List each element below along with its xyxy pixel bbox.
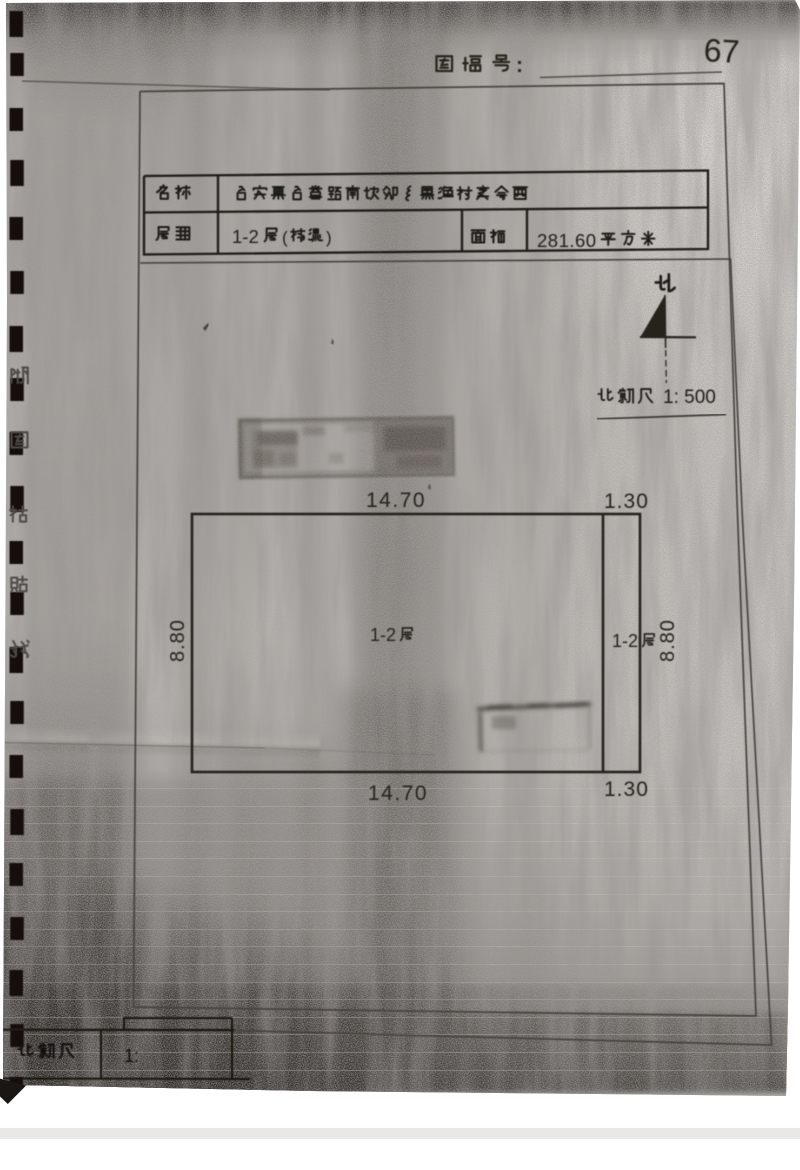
svg-text:): ) <box>326 228 332 247</box>
svg-text:8.80: 8.80 <box>657 619 679 662</box>
svg-text:1.30: 1.30 <box>604 490 649 513</box>
svg-text::: : <box>516 54 523 77</box>
svg-text:1-2: 1-2 <box>370 625 396 645</box>
svg-text:14.70: 14.70 <box>368 782 428 805</box>
svg-text:1-2: 1-2 <box>612 631 638 651</box>
svg-text:67: 67 <box>703 32 740 70</box>
svg-text:(: ( <box>282 228 288 247</box>
svg-text:1.30: 1.30 <box>604 778 649 801</box>
svg-text:1:: 1: <box>124 1046 139 1066</box>
svg-text:1-2: 1-2 <box>232 226 259 247</box>
svg-text:14.70: 14.70 <box>366 489 426 512</box>
svg-text:1: 500: 1: 500 <box>663 387 716 408</box>
svg-text:8.80: 8.80 <box>167 619 189 662</box>
svg-text:281.60: 281.60 <box>537 230 597 251</box>
